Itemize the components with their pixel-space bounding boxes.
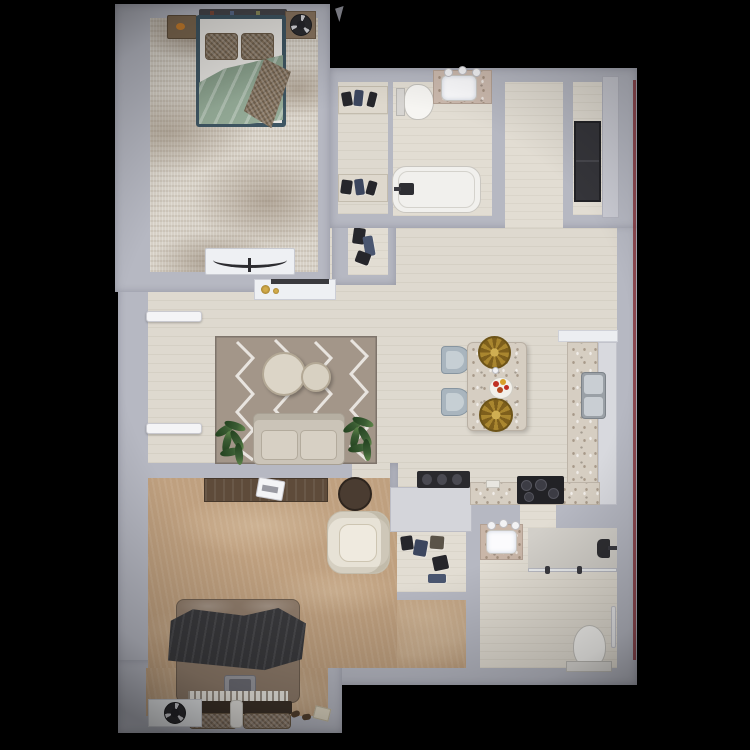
appliance-jar [452,474,462,485]
kitchen-counter-right [567,342,598,505]
dining-chair-gold-south [479,398,513,432]
folded-clothes [430,536,445,550]
cursor-artifact [335,6,348,22]
sink-basin-lower [584,397,603,416]
bed1-pillow-left [205,33,238,60]
pot [535,479,547,491]
window-ledge [558,330,618,342]
faucet-knob [444,68,453,77]
faucet-knob [499,519,508,528]
sofa-cushion-right [300,430,337,460]
faucet-knob [458,66,467,75]
toilet2-tank [566,661,612,672]
faucet-knob [511,521,520,530]
floor-plan-canvas [0,0,750,750]
candle [176,23,185,30]
vanity1-sink [441,75,477,101]
coffee-table-small [301,362,331,392]
faucet-knob [472,68,481,77]
pot [548,488,559,499]
appliance-jar [422,474,432,485]
coffee-table-large [262,352,306,396]
partition-handle [577,566,582,574]
radiator-lower [146,423,202,434]
dining-chair-gold-north [478,336,511,369]
folded-clothes [428,574,446,583]
glass-partition [528,568,617,572]
hall-nook-floor [505,82,563,228]
shoes [353,90,364,107]
fruit [504,385,509,390]
appliance-jar [437,474,447,485]
ceiling-fan-icon [290,14,312,36]
ceiling-fan-icon-2 [164,702,186,724]
round-side-table [338,477,372,511]
armchair-cushion [339,524,377,562]
shower-arm [608,546,617,550]
table-candle [492,367,499,374]
shoes [340,179,353,194]
plant-right [340,416,380,466]
toilet1-bowl [404,84,434,120]
towel-bar [611,606,616,648]
pot [521,480,532,491]
vanity2-sink [486,530,517,554]
dark-blanket [168,608,306,672]
sofa-cushion-left [261,430,298,460]
sliding-panel [602,76,619,218]
wardrobe-shelf-line [576,160,599,162]
plant-left [212,420,254,468]
console-dark-strip [271,279,329,284]
cutting-board [486,480,500,488]
tub-faucet-stem [394,187,401,191]
gold-decor-bowl [261,285,270,294]
pot [524,492,534,502]
candle-holder [230,700,243,728]
dresser-leg [248,258,251,272]
folded-clothes [400,535,414,551]
bathroom2-door-opening [520,505,556,528]
sink-basin-upper [584,375,603,394]
fruit [493,381,499,387]
bed1-pillow-right [241,33,274,60]
red-wall-edge [633,80,636,660]
tub-faucet [399,183,414,195]
fruit [497,387,503,393]
partition-handle [545,566,550,574]
peninsula-cabinet [390,487,472,532]
bedroom2-rug-right [397,600,466,668]
gold-decor-bowl [273,288,279,294]
kitchen-counter-right-edge [598,342,617,505]
faucet-knob [487,521,496,530]
radiator-upper [146,311,202,322]
headboard-pillow-right [243,713,291,729]
folded-clothes [413,539,429,557]
